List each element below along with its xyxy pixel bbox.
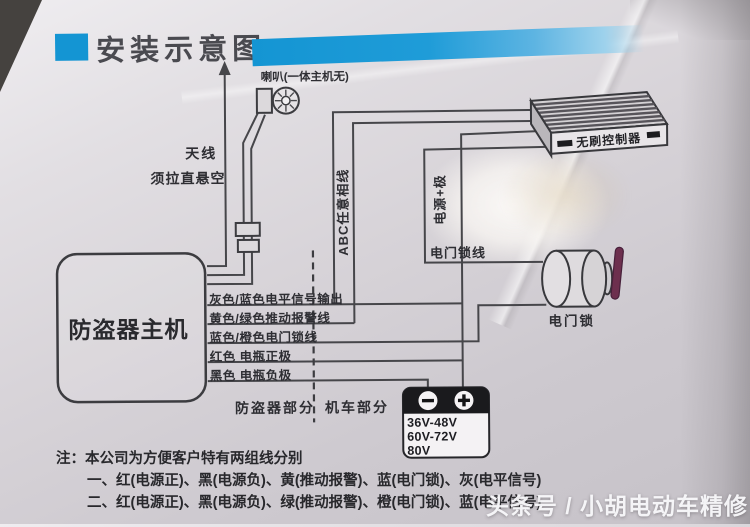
notes-section: 注：本公司为方便客户特有两组线分别 一、红(电源正)、黑(电源负)、黄(推动报警… [0,0,750,524]
note-item-2: 二、红(电源正)、黑(电源负)、绿(推动报警)、橙(电门锁)、蓝(电平信号) [87,491,541,512]
note-item-1: 一、红(电源正)、黑(电源负)、黄(推动报警)、蓝(电门锁)、灰(电平信号) [87,469,541,490]
watermark: 头条号 / 小胡电动车精修 [486,487,748,521]
note-header: 注：本公司为方便客户特有两组线分别 [56,447,303,468]
